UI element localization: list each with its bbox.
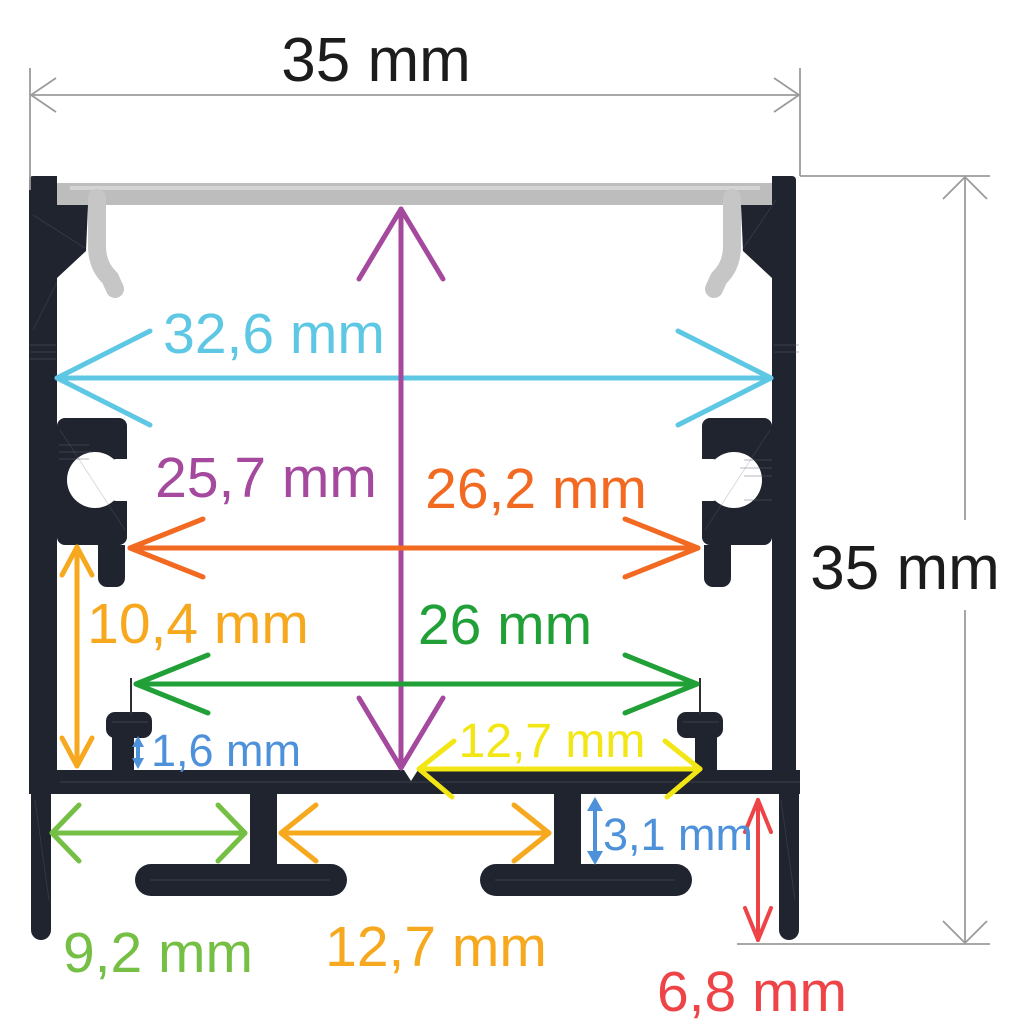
- foot-pitch-arrow: [281, 805, 549, 861]
- left-strip-stud-stem: [112, 734, 134, 770]
- right-ledge-tab: [704, 545, 731, 587]
- diffuser-clip-right: [714, 198, 732, 289]
- label-inner-height: 25,7 mm: [155, 446, 377, 510]
- label-groove-width: 26,2 mm: [425, 457, 647, 521]
- label-foot-pitch: 12,7 mm: [325, 915, 547, 979]
- profile-drawing: 35 mm 35 mm 32,6 mm 25,7 mm 26,2 mm 10,4…: [0, 0, 1024, 1024]
- diffuser-clip-left: [97, 198, 115, 289]
- label-pin-span: 26 mm: [418, 593, 592, 657]
- foot-height-arrow: [587, 797, 603, 865]
- ledge-height-arrow: [62, 547, 92, 766]
- label-half-width: 12,7 mm: [459, 715, 646, 768]
- right-wall: [772, 176, 796, 770]
- label-leg-height: 6,8 mm: [657, 960, 847, 1024]
- label-foot-gap: 9,2 mm: [63, 921, 253, 985]
- left-mid-leg: [250, 794, 277, 867]
- left-top-step: [57, 205, 88, 278]
- left-outer-leg: [31, 794, 51, 940]
- left-wall: [29, 176, 57, 770]
- right-outer-leg: [779, 794, 799, 940]
- label-ledge-height: 10,4 mm: [87, 592, 309, 656]
- label-inner-width: 32,6 mm: [163, 302, 385, 366]
- left-ledge-tab: [98, 545, 125, 587]
- foot-gap-arrow: [52, 805, 245, 861]
- left-screw-slot: [112, 459, 131, 501]
- dimension-drawing-canvas: 35 mm 35 mm 32,6 mm 25,7 mm 26,2 mm 10,4…: [0, 0, 1024, 1024]
- diffuser-highlight: [70, 186, 760, 190]
- right-screw-slot: [698, 459, 717, 501]
- label-outer-height: 35 mm: [810, 534, 999, 603]
- label-pin-step: 1,6 mm: [151, 725, 301, 776]
- label-outer-width: 35 mm: [281, 26, 470, 95]
- groove-width-arrow: [130, 519, 698, 577]
- right-top-step: [741, 205, 772, 278]
- pin-span-arrow: [136, 655, 697, 713]
- label-foot-height: 3,1 mm: [603, 809, 753, 860]
- right-mid-leg: [554, 794, 581, 867]
